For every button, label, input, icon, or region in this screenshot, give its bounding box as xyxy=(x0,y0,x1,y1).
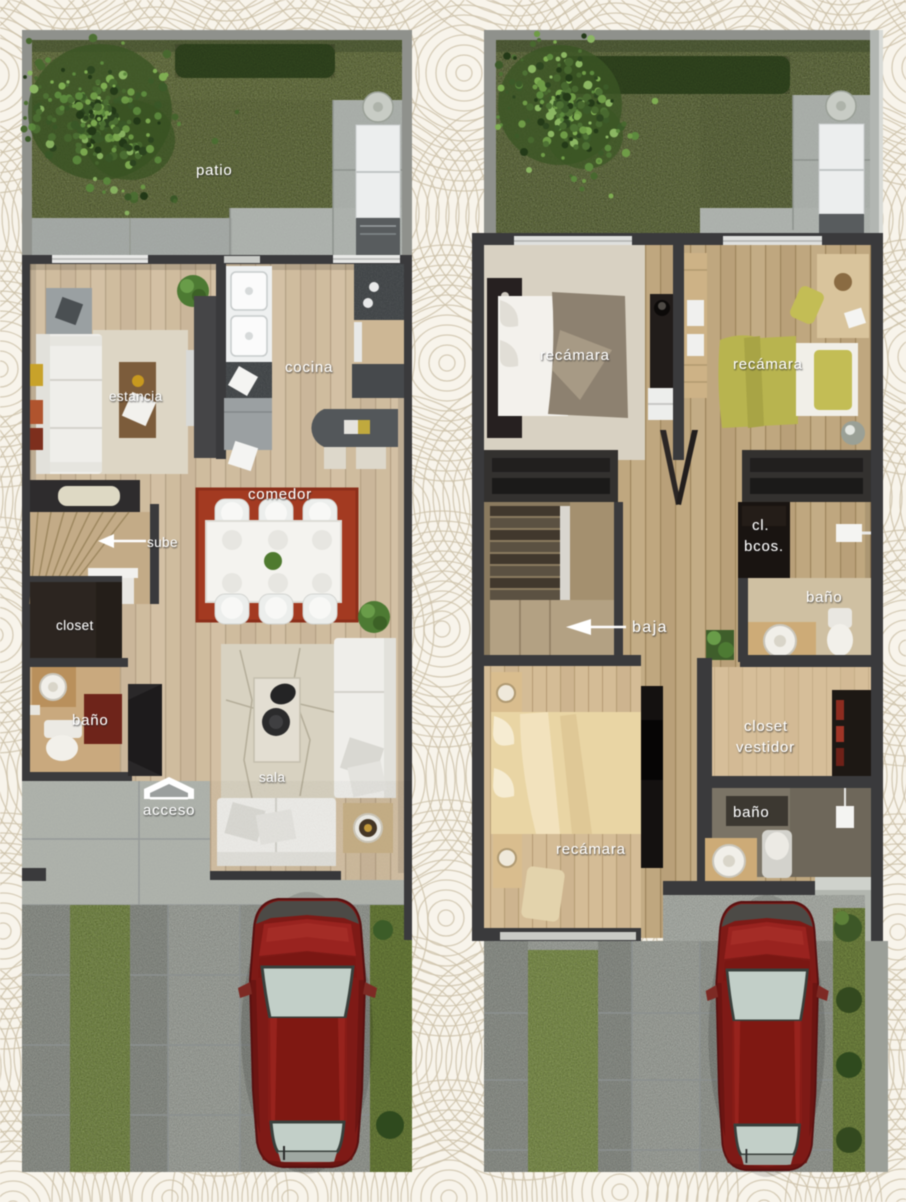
svg-text:baño: baño xyxy=(72,712,109,729)
svg-text:estancia: estancia xyxy=(109,389,163,404)
svg-text:closet: closet xyxy=(56,618,94,633)
svg-text:closet: closet xyxy=(744,718,788,735)
svg-text:recámara: recámara xyxy=(733,356,803,373)
svg-text:acceso: acceso xyxy=(143,802,195,819)
svg-text:baño: baño xyxy=(733,804,770,821)
svg-text:baño: baño xyxy=(806,589,843,606)
svg-text:sube: sube xyxy=(147,535,178,550)
svg-text:patio: patio xyxy=(196,162,233,179)
svg-text:bcos.: bcos. xyxy=(744,538,784,555)
svg-text:vestidor: vestidor xyxy=(736,739,795,756)
svg-text:comedor: comedor xyxy=(248,486,312,503)
svg-text:recámara: recámara xyxy=(556,841,626,858)
svg-text:recámara: recámara xyxy=(540,347,610,364)
svg-text:cl.: cl. xyxy=(752,517,769,534)
svg-text:baja: baja xyxy=(632,619,668,636)
svg-text:cocina: cocina xyxy=(285,359,333,376)
